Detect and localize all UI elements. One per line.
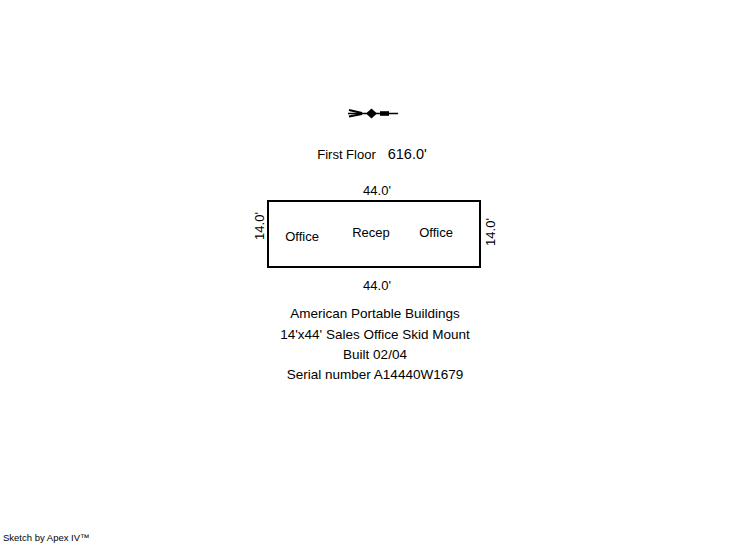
floor-area-value: 616.0' — [388, 146, 427, 162]
dimension-right: 14.0' — [483, 218, 498, 246]
room-label-office-left: Office — [285, 229, 319, 244]
sketch-sheet: First Floor 616.0' 44.0' 14.0' 14.0' 44.… — [0, 0, 746, 547]
room-label-recep: Recep — [352, 225, 390, 240]
description-line-model: 14'x44' Sales Office Skid Mount — [280, 327, 470, 342]
room-label-office-right: Office — [419, 225, 453, 240]
dimension-left: 14.0' — [252, 212, 267, 240]
dimension-bottom: 44.0' — [363, 278, 391, 293]
description-line-serial: Serial number A14440W1679 — [287, 367, 463, 382]
dimension-top: 44.0' — [363, 183, 391, 198]
description-line-built: Built 02/04 — [343, 347, 407, 362]
description-line-building: American Portable Buildings — [290, 306, 460, 321]
north-arrow-icon — [346, 104, 400, 122]
floor-title-line: First Floor 616.0' — [317, 146, 427, 162]
sketch-credit: Sketch by Apex IV™ — [3, 532, 90, 543]
floor-name-label: First Floor — [317, 147, 376, 162]
